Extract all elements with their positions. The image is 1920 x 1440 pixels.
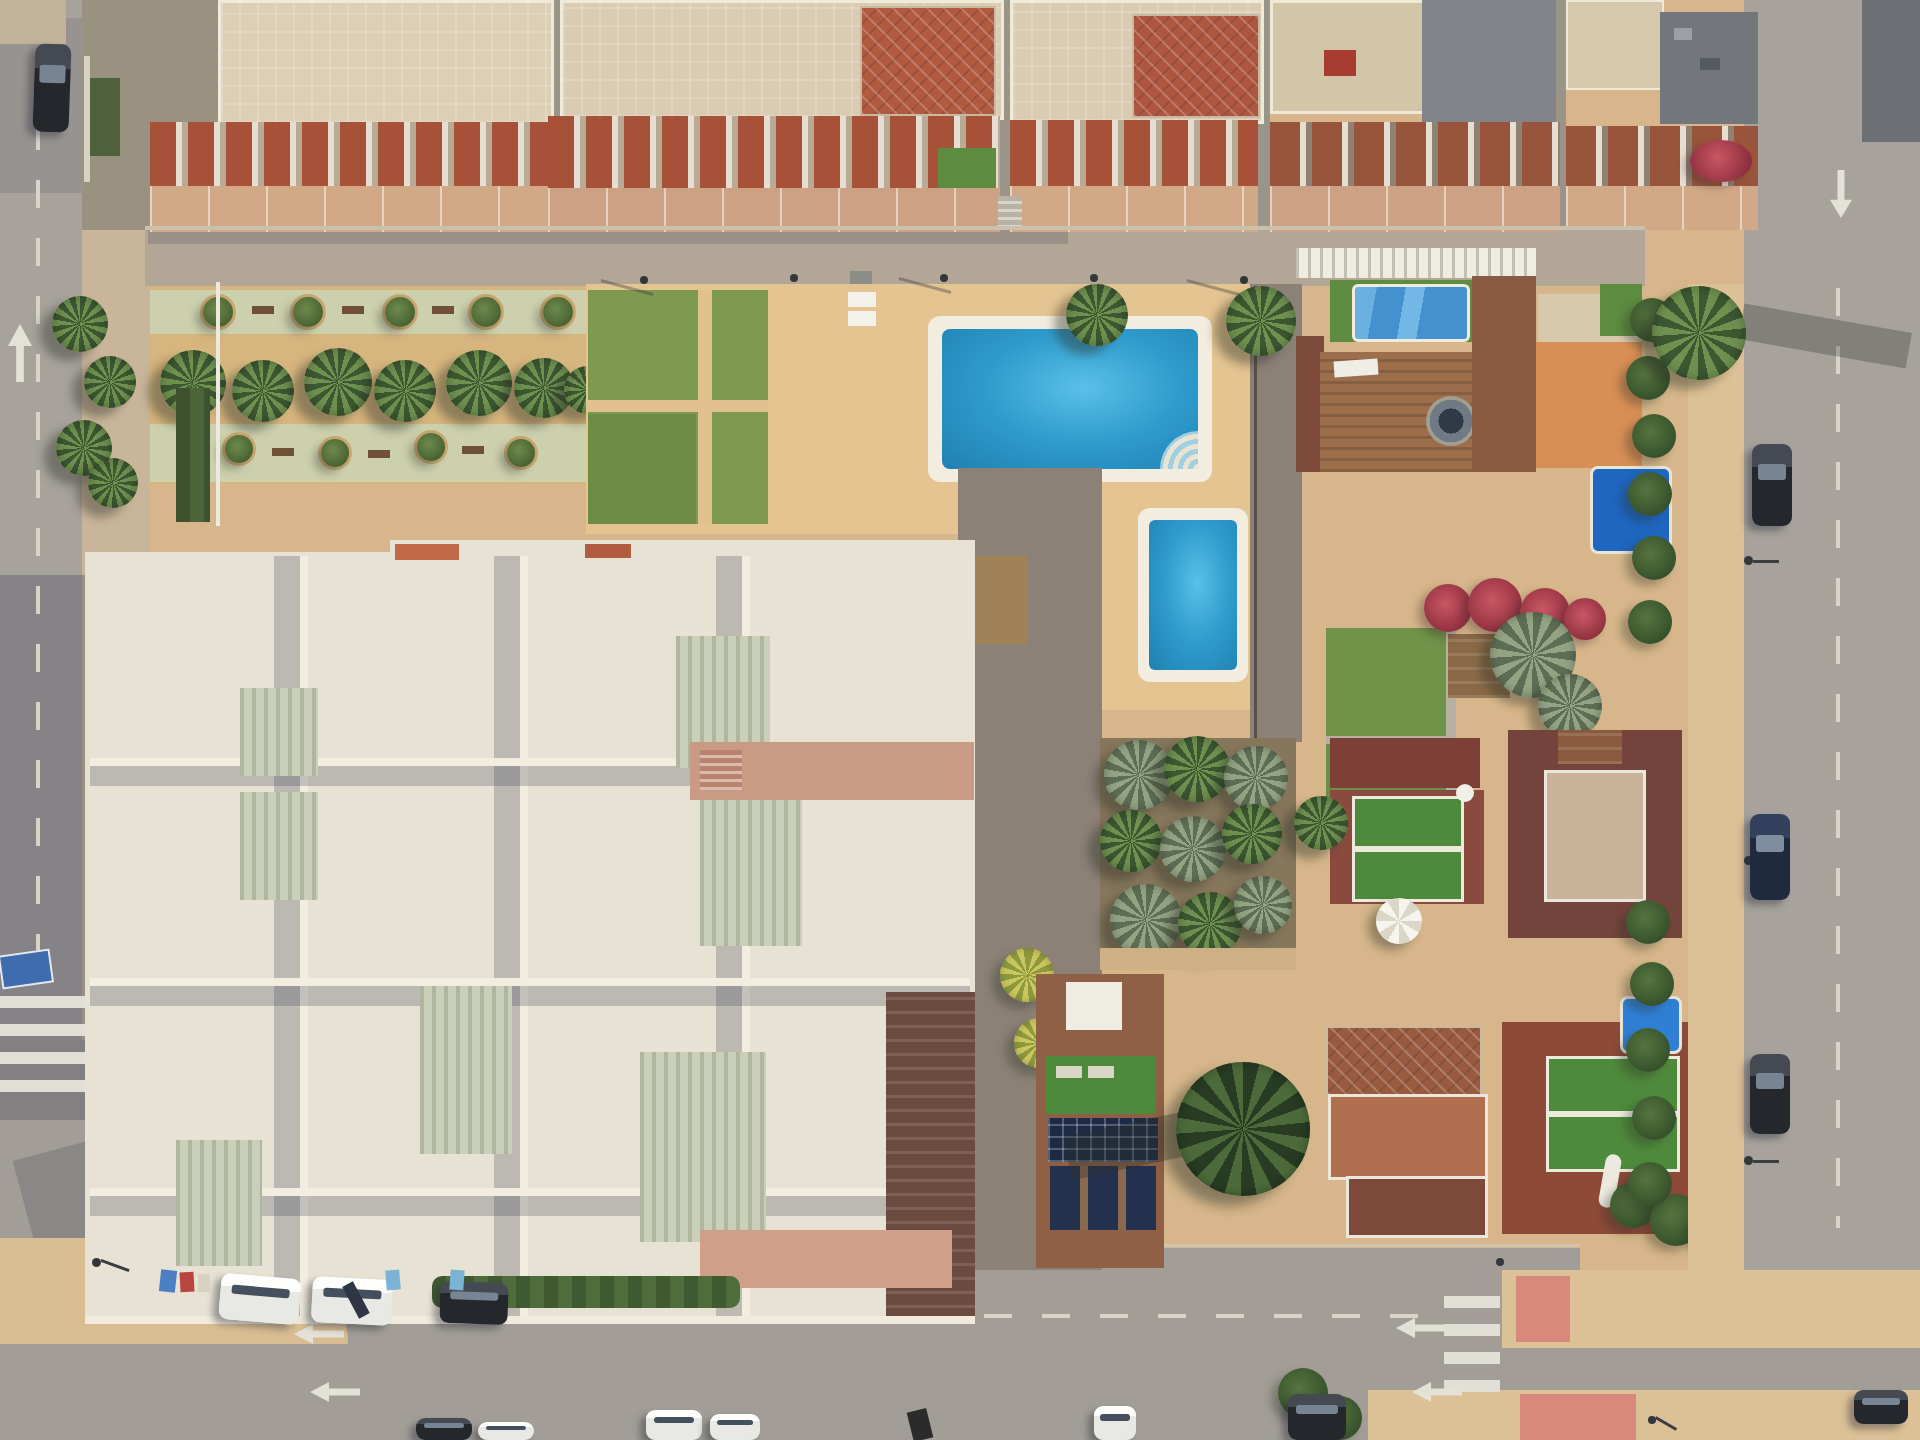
olive-tree-8 — [417, 433, 445, 461]
garden-palm-5 — [1160, 816, 1226, 882]
roof-beige-a — [218, 0, 554, 126]
patio-umbrella — [1376, 898, 1422, 944]
deck-lamp-2 — [790, 274, 798, 282]
park-fence — [216, 282, 220, 526]
bottomright-island-lower — [1368, 1390, 1920, 1440]
solar-panel-bays — [1050, 1166, 1156, 1230]
skylight-panel-1 — [240, 688, 318, 776]
olive-tree-5 — [543, 297, 573, 327]
hedge-bottom-5 — [1628, 1162, 1672, 1206]
patio-row-e — [1566, 186, 1758, 230]
roof-gray-1 — [1422, 0, 1556, 126]
edge-car-suv — [1288, 1394, 1346, 1440]
top-left-garden — [88, 78, 120, 156]
park-hedge — [176, 388, 210, 522]
row1-palm-b — [1066, 284, 1128, 346]
parking-sign-blue-1 — [159, 1269, 177, 1293]
bougainvillea-1 — [1424, 584, 1472, 632]
shop-sign-white — [198, 1274, 210, 1292]
right-lamp-arm-1 — [1753, 560, 1779, 563]
garden-palm-8 — [1178, 892, 1242, 956]
complex-orange-edge-2 — [585, 544, 631, 558]
balcony-row-b — [548, 116, 1000, 188]
row3-palm — [1294, 796, 1348, 850]
patio-turf-patch — [938, 148, 996, 188]
sun-lounger-2 — [848, 311, 876, 326]
corner-lamp — [92, 1258, 101, 1267]
garden-gravel-path — [1100, 948, 1296, 970]
olive-tree-9 — [507, 439, 535, 467]
deck-lamp-5 — [1240, 276, 1248, 284]
edge-car-5 — [1094, 1406, 1136, 1440]
olive-tree-7 — [321, 439, 349, 467]
parked-car-right-1 — [1752, 444, 1792, 526]
small-pool — [1149, 520, 1237, 670]
park-bench-4 — [272, 448, 294, 456]
garden-lawn-1 — [1326, 628, 1446, 736]
hedge-top-5 — [1632, 536, 1676, 580]
garden-palm-6 — [1222, 804, 1282, 864]
hedge-top-4 — [1628, 472, 1672, 516]
olive-tree-6 — [225, 435, 253, 463]
villa4-terrace — [1544, 770, 1646, 902]
parking-sign-blue-3 — [449, 1270, 464, 1291]
edge-car-2 — [478, 1422, 534, 1440]
deck-utility-box — [850, 271, 872, 284]
sun-lounger-1 — [848, 292, 876, 307]
shop-sign-red — [179, 1272, 194, 1293]
solar-villa-lounger-1 — [1056, 1066, 1082, 1078]
villa1-jacuzzi — [1426, 396, 1476, 446]
olive-tree-2 — [293, 297, 323, 327]
right-road — [1744, 0, 1920, 1440]
parked-car-right-2 — [1750, 814, 1790, 900]
garden-palm-2 — [1164, 736, 1230, 802]
skylight-panel-4 — [700, 800, 802, 946]
left-lane-dash — [36, 6, 40, 966]
parapet-shadow-h2 — [90, 986, 970, 1006]
skylight-panel-5 — [420, 986, 512, 1154]
garden-palm-4 — [1100, 810, 1162, 872]
crosswalk-bottom-right — [1444, 1296, 1500, 1394]
skylight-panel-6 — [640, 1052, 766, 1242]
balcony-row-d — [1270, 122, 1560, 186]
edge-car-3 — [646, 1410, 702, 1440]
villa2-patio — [1536, 342, 1642, 468]
roof-red-tile-1 — [860, 6, 996, 116]
villa3-turf-court — [1352, 796, 1464, 902]
roof-corner-dark — [1862, 0, 1920, 142]
park-palm-2 — [232, 360, 294, 422]
hedge-bottom-4 — [1632, 1096, 1676, 1140]
villa3-roof-top — [1330, 738, 1480, 788]
bottomright-pink-lower — [1520, 1394, 1636, 1440]
courtyard-stairs — [700, 750, 742, 790]
solar-villa-lounger-2 — [1088, 1066, 1114, 1078]
deck-lamp-4 — [1090, 274, 1098, 282]
deck-lamp-3 — [940, 274, 948, 282]
aerial-photo — [0, 0, 1920, 1440]
right-sidewalk — [1688, 284, 1744, 1274]
top-left-wall — [84, 56, 90, 182]
edge-car-1 — [416, 1418, 472, 1440]
street-name-sign — [0, 949, 54, 990]
hedge-bottom-3 — [1626, 1028, 1670, 1072]
main-pool — [942, 329, 1198, 469]
complex-bottom-parapet — [85, 1316, 975, 1324]
skylight-panel-2 — [240, 792, 318, 900]
villa5-terrace — [1328, 1094, 1488, 1180]
lawn-dry-patch — [588, 414, 696, 524]
edge-car-4 — [710, 1414, 760, 1440]
street-palm-1 — [52, 296, 108, 352]
roof-court-red-square — [1324, 50, 1356, 76]
garden-palm-9 — [1234, 876, 1292, 934]
roof-red-tile-2 — [1132, 14, 1260, 118]
garden-palm-7 — [1110, 884, 1182, 956]
roadside-palm — [1652, 286, 1746, 380]
villa5-lower-terrace — [1346, 1176, 1488, 1238]
right-lane-dash — [1836, 288, 1840, 1228]
park-bench-2 — [342, 306, 364, 314]
park-bench-6 — [462, 446, 484, 454]
rooftop-ac-unit-2 — [1700, 58, 1720, 70]
street-palm-2 — [84, 356, 136, 408]
villa4-pergola — [1558, 730, 1622, 764]
parked-car-right-3 — [1750, 1054, 1790, 1134]
villa1-covered-pool — [1352, 284, 1470, 342]
villa1-lounger — [1333, 358, 1378, 377]
balcony-bougainvillea — [1690, 140, 1752, 182]
garden-palm-1 — [1104, 740, 1174, 810]
rooftop-ac-unit-1 — [1674, 28, 1692, 40]
lawn-path-horizontal — [588, 400, 768, 412]
parapet-line-h2 — [90, 978, 970, 986]
villa3-satellite-dish — [1456, 784, 1474, 802]
solar-villa-white-box — [1066, 982, 1122, 1030]
br-lamp-1 — [1496, 1258, 1504, 1266]
garden-agave — [1538, 674, 1602, 738]
roof-beige-e — [1566, 0, 1664, 90]
edge-car-6 — [1854, 1390, 1908, 1424]
park-palm-5 — [446, 350, 512, 416]
parked-car-topleft — [32, 43, 71, 132]
park-bench-5 — [368, 450, 390, 458]
hedge-bottom-2 — [1630, 962, 1674, 1006]
top-building-sliver — [0, 0, 66, 44]
solar-villa-turf — [1046, 1056, 1156, 1114]
park-bench-1 — [252, 306, 274, 314]
park-palm-4 — [374, 360, 436, 422]
olive-tree-3 — [385, 297, 415, 327]
skylight-panel-7 — [176, 1140, 262, 1266]
curb-top — [145, 226, 1645, 230]
park-palm-3 — [304, 348, 372, 416]
balcony-row-a — [150, 122, 548, 186]
passage-stairs — [998, 196, 1022, 228]
complex-orange-edge-1 — [395, 544, 459, 560]
hedge-bottom-1 — [1626, 900, 1670, 944]
parked-car-bottom-1 — [218, 1273, 302, 1326]
balcony-row-c — [1010, 120, 1258, 186]
villa5-roof — [1326, 1026, 1482, 1096]
bottomright-pink-upper — [1516, 1276, 1570, 1342]
top-building-shadow — [148, 230, 1068, 244]
big-palm — [1176, 1062, 1310, 1196]
right-lamp-arm-3 — [1753, 1160, 1779, 1163]
deck-lamp-1 — [640, 276, 648, 284]
row1-palm-a — [1226, 286, 1296, 356]
olive-tree-4 — [471, 297, 501, 327]
lawn-path-vertical — [698, 290, 712, 524]
hedge-top-3 — [1632, 414, 1676, 458]
complex-roof-extension — [390, 540, 975, 556]
hedge-top-6 — [1628, 600, 1672, 644]
garden-palm-3 — [1224, 746, 1288, 810]
villa1-roof-block — [1472, 276, 1536, 472]
park-bench-3 — [432, 306, 454, 314]
right-lamp-3 — [1744, 1156, 1753, 1165]
street-palm-4 — [88, 458, 138, 508]
villa1-pergola — [1296, 248, 1536, 278]
parking-sign-blue-2 — [385, 1269, 401, 1290]
right-lamp-1 — [1744, 556, 1753, 565]
